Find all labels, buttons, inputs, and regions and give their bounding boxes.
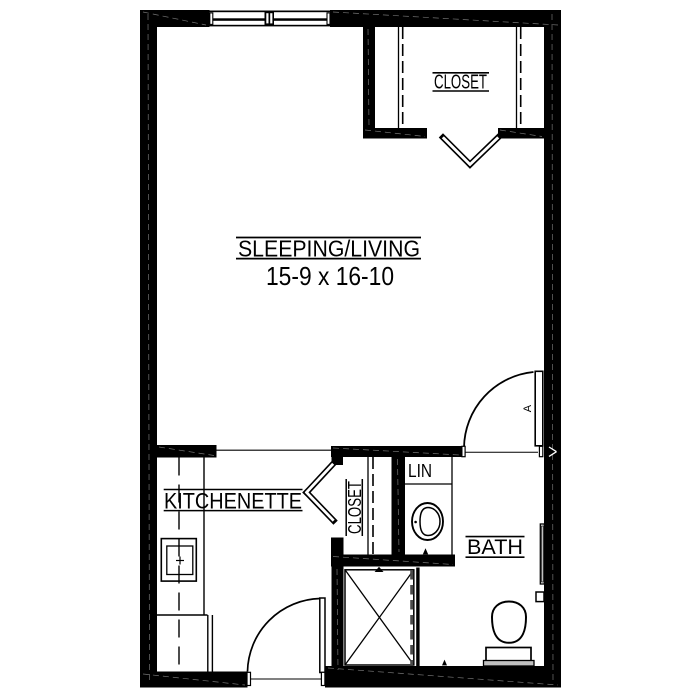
svg-text:15-9 x 16-10: 15-9 x 16-10 [266, 261, 394, 291]
svg-text:A: A [522, 404, 534, 412]
svg-text:SLEEPING/LIVING: SLEEPING/LIVING [238, 236, 420, 262]
svg-text:BATH: BATH [467, 536, 523, 559]
svg-text:KITCHENETTE: KITCHENETTE [164, 488, 302, 513]
svg-text:LIN: LIN [408, 461, 432, 481]
